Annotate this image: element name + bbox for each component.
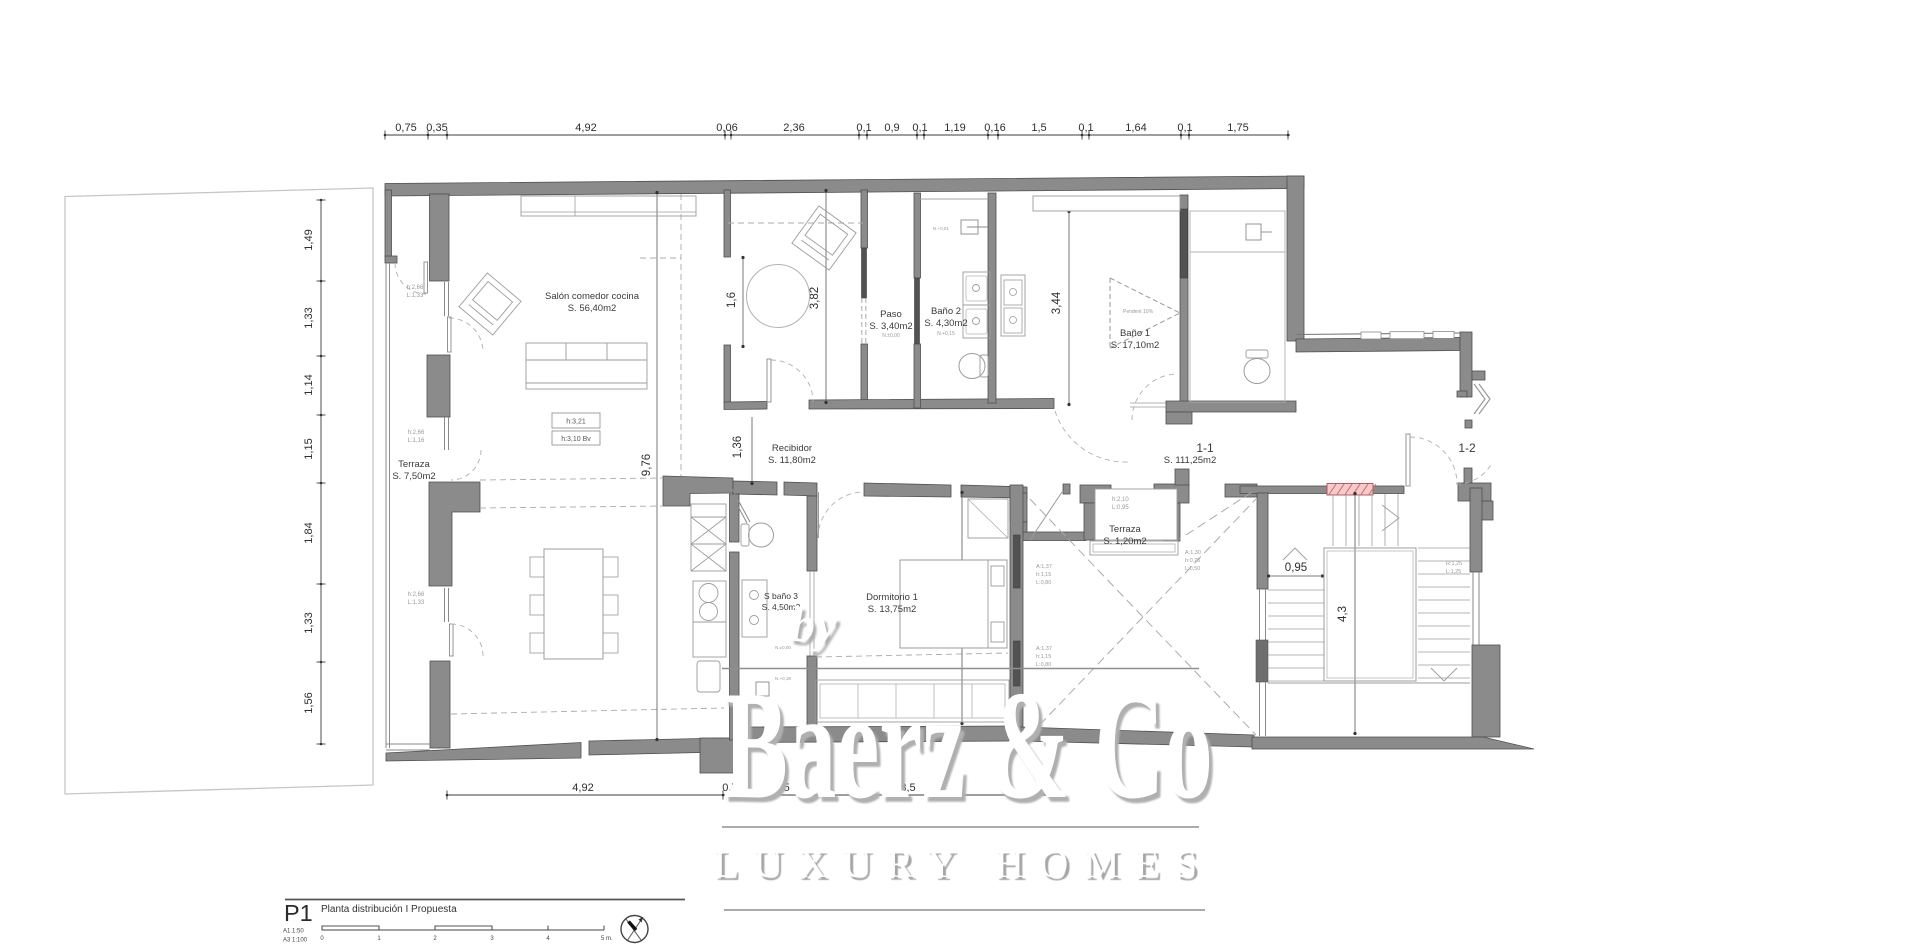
svg-text:Baño 1: Baño 1 (1120, 328, 1150, 339)
svg-text:3,82: 3,82 (809, 287, 821, 309)
svg-text:Terraza: Terraza (398, 459, 430, 470)
svg-text:1,6: 1,6 (726, 292, 738, 308)
svg-text:1,49: 1,49 (303, 229, 315, 250)
svg-text:L:1,16: L:1,16 (408, 438, 425, 444)
svg-text:h:0,75: h:0,75 (1185, 558, 1200, 564)
svg-text:N.+0,01: N.+0,01 (933, 226, 949, 231)
svg-text:0,1: 0,1 (856, 122, 871, 134)
svg-text:h:3,10 Bv: h:3,10 Bv (561, 436, 591, 443)
svg-text:L:0,50: L:0,50 (1185, 566, 1200, 572)
svg-text:L:1,33: L:1,33 (408, 600, 425, 606)
svg-text:0,1: 0,1 (912, 122, 927, 134)
svg-text:h:2,66: h:2,66 (408, 430, 425, 436)
svg-text:A:1,37: A:1,37 (1036, 564, 1052, 570)
svg-text:1,14: 1,14 (303, 374, 315, 395)
svg-text:1,36: 1,36 (732, 436, 744, 458)
svg-text:0,06: 0,06 (716, 122, 737, 134)
svg-text:h:3,21: h:3,21 (566, 419, 586, 426)
svg-text:0,35: 0,35 (426, 122, 447, 134)
svg-text:LUXURY HOMES: LUXURY HOMES (714, 841, 1213, 886)
svg-text:Paso: Paso (880, 309, 902, 320)
svg-text:Dormitorio 1: Dormitorio 1 (866, 592, 918, 603)
svg-text:A:1,30: A:1,30 (1185, 550, 1201, 556)
svg-text:1,84: 1,84 (303, 522, 315, 543)
svg-text:0,95: 0,95 (1285, 562, 1307, 574)
svg-text:A1 1:50: A1 1:50 (283, 929, 304, 935)
svg-text:Recibidor: Recibidor (772, 443, 812, 454)
svg-text:0,75: 0,75 (395, 122, 416, 134)
svg-text:Terraza: Terraza (1109, 524, 1141, 535)
svg-text:A3 1:100: A3 1:100 (283, 938, 308, 944)
svg-text:1,15: 1,15 (303, 438, 315, 459)
svg-text:1,64: 1,64 (1125, 122, 1146, 134)
svg-text:S. 3,40m2: S. 3,40m2 (869, 321, 912, 332)
svg-text:1,75: 1,75 (1227, 122, 1248, 134)
svg-text:Baño 2: Baño 2 (931, 306, 961, 317)
svg-text:S. 4,30m2: S. 4,30m2 (924, 318, 967, 329)
svg-text:3,44: 3,44 (1051, 291, 1063, 314)
svg-text:Salón comedor cocina: Salón comedor cocina (545, 291, 640, 302)
svg-text:S. 13,75m2: S. 13,75m2 (868, 604, 917, 615)
svg-text:P1: P1 (284, 900, 313, 926)
svg-text:L:1,33: L:1,33 (407, 293, 424, 299)
svg-text:by: by (790, 596, 838, 652)
svg-text:S. 56,40m2: S. 56,40m2 (568, 303, 617, 314)
svg-text:Baerz & Co: Baerz & Co (723, 659, 1213, 830)
svg-text:h:2,66: h:2,66 (408, 592, 425, 598)
svg-text:5 m.: 5 m. (601, 936, 613, 942)
svg-text:h:2,10: h:2,10 (1112, 497, 1129, 503)
svg-text:h:2,66: h:2,66 (407, 285, 424, 291)
svg-text:0,16: 0,16 (984, 122, 1005, 134)
svg-text:4,92: 4,92 (572, 782, 593, 794)
svg-text:Pendent 10%: Pendent 10% (1123, 309, 1154, 315)
svg-text:9,76: 9,76 (641, 454, 653, 476)
svg-text:2,36: 2,36 (783, 122, 804, 134)
svg-text:N.±0,00: N.±0,00 (882, 333, 900, 339)
svg-text:L:1,25: L:1,25 (1446, 569, 1461, 575)
svg-text:N.+0,15: N.+0,15 (937, 331, 955, 337)
svg-text:A:1,37: A:1,37 (1036, 646, 1052, 652)
svg-text:1,5: 1,5 (1031, 122, 1046, 134)
svg-text:4,92: 4,92 (575, 122, 596, 134)
svg-text:0,1: 0,1 (1078, 122, 1093, 134)
svg-text:Planta distribución I Propuest: Planta distribución I Propuesta (321, 904, 457, 915)
svg-text:h:1,15: h:1,15 (1036, 572, 1051, 578)
svg-text:1-1: 1-1 (1196, 441, 1214, 455)
svg-text:S. 7,50m2: S. 7,50m2 (392, 471, 435, 482)
svg-text:L:0,95: L:0,95 (1112, 505, 1129, 511)
svg-text:1,19: 1,19 (944, 122, 965, 134)
svg-text:4,3: 4,3 (1337, 606, 1349, 622)
svg-text:S. 11,80m2: S. 11,80m2 (768, 455, 816, 466)
svg-text:R:1,25: R:1,25 (1446, 561, 1462, 567)
svg-text:S. 17,10m2: S. 17,10m2 (1111, 340, 1160, 351)
svg-text:1,56: 1,56 (303, 692, 315, 713)
svg-text:0,1: 0,1 (1177, 122, 1192, 134)
svg-text:S. 111,25m2: S. 111,25m2 (1164, 455, 1216, 466)
svg-text:0,9: 0,9 (884, 122, 899, 134)
svg-text:1-2: 1-2 (1458, 441, 1476, 455)
svg-text:1,33: 1,33 (303, 307, 315, 328)
svg-text:S. 1,20m2: S. 1,20m2 (1103, 536, 1146, 547)
svg-text:1,33: 1,33 (303, 612, 315, 633)
svg-text:L:0,80: L:0,80 (1036, 580, 1051, 586)
svg-text:N.±0,00: N.±0,00 (775, 645, 791, 650)
